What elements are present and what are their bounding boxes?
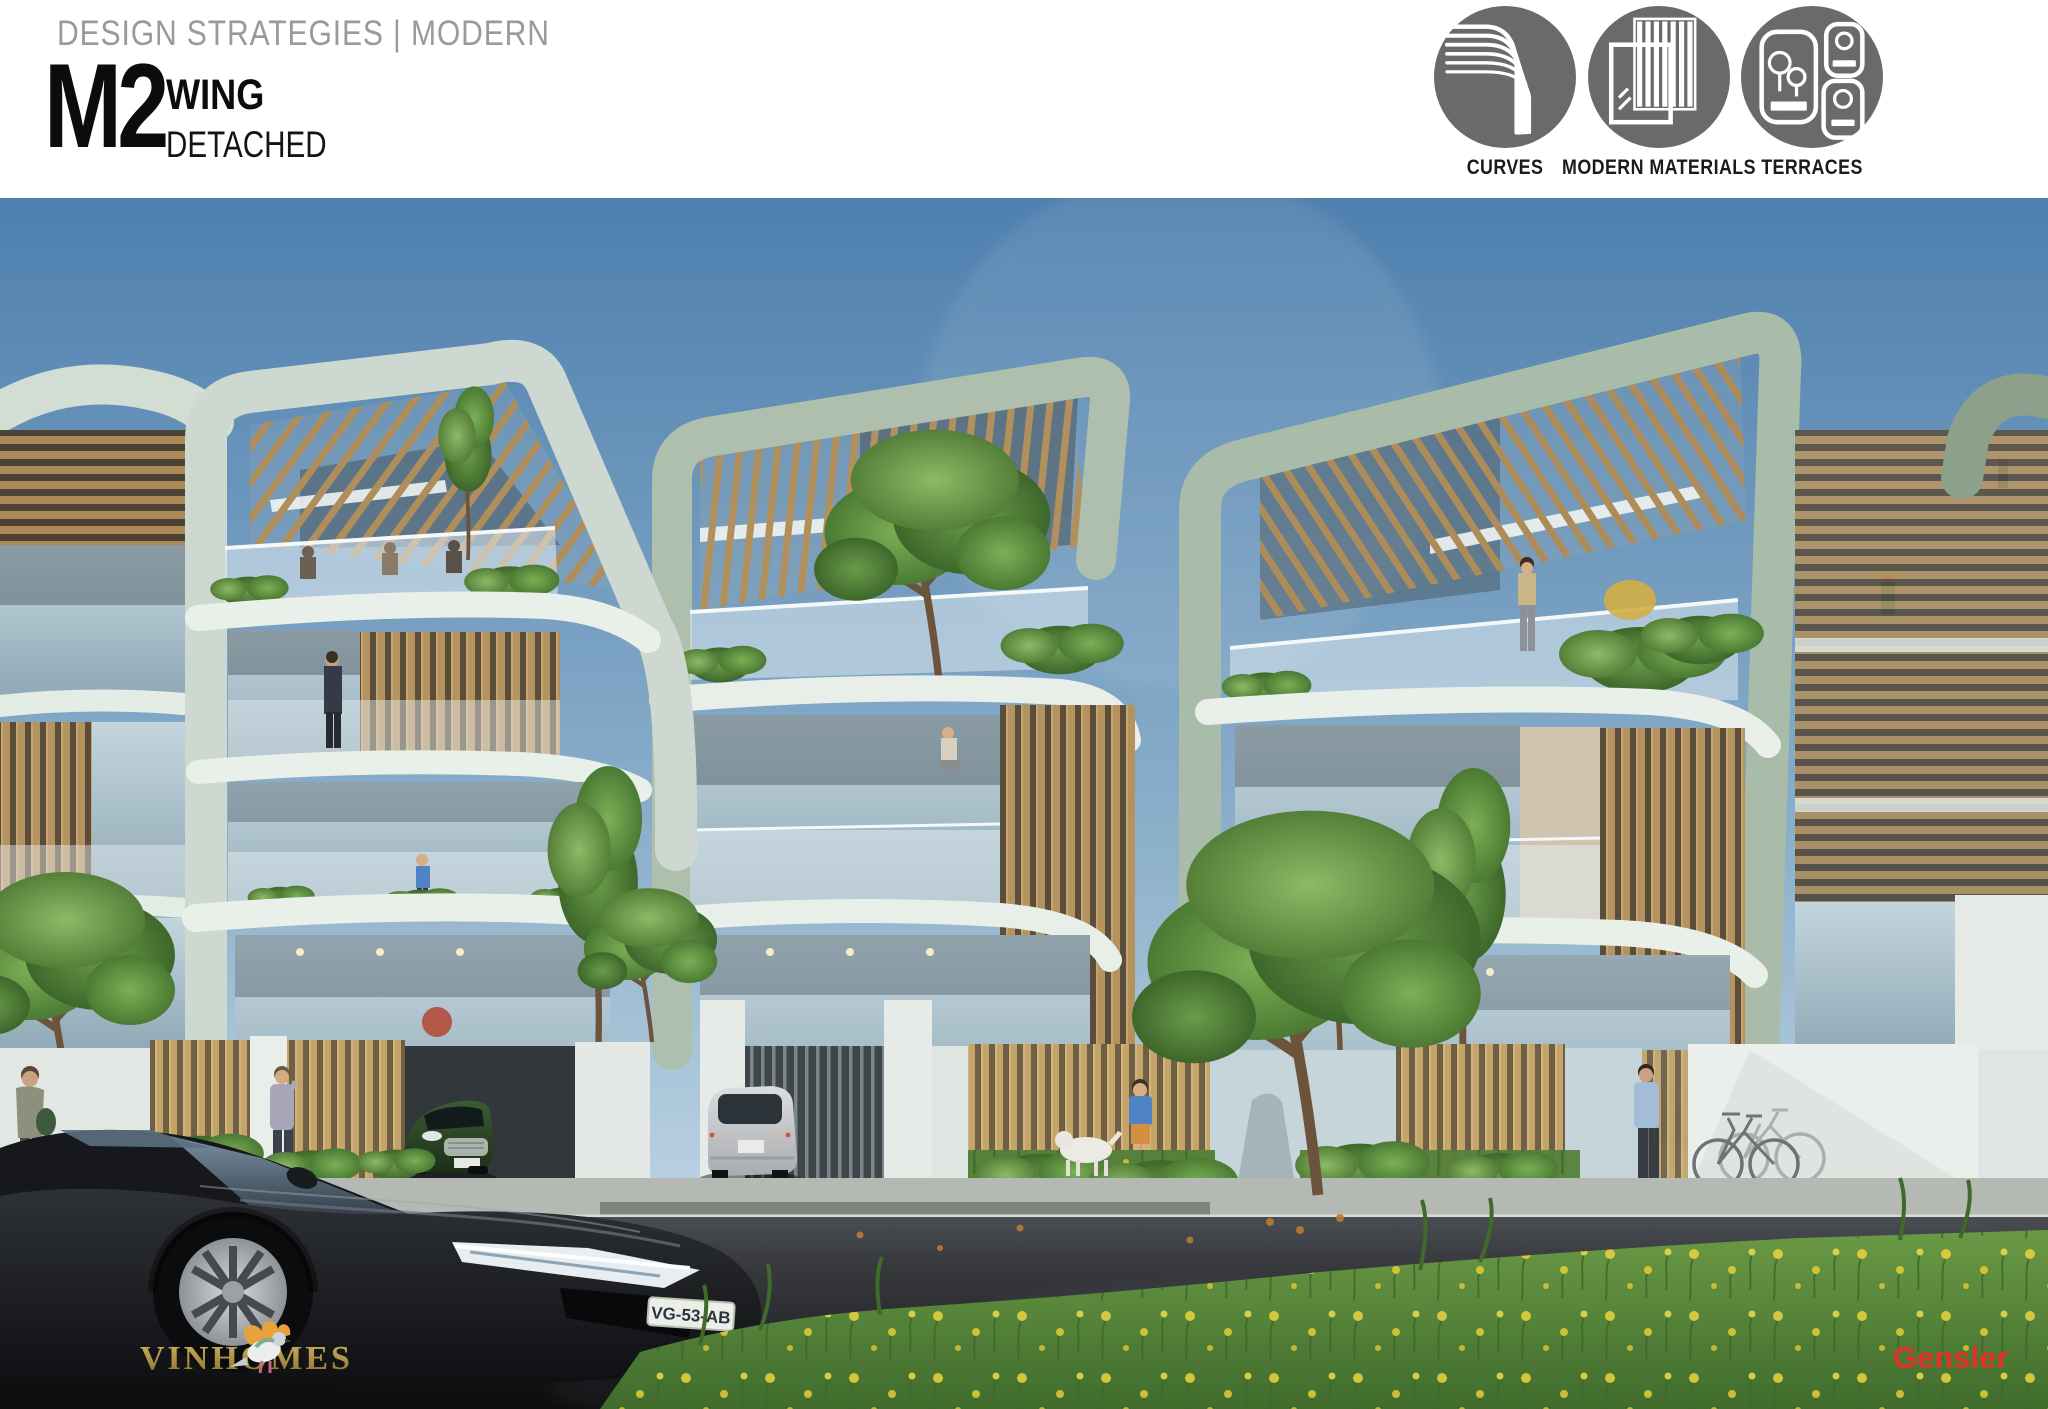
curves-icon [1434, 6, 1576, 148]
car-suv-silver [698, 1086, 802, 1189]
strategy-modern-materials: MODERN MATERIALS [1588, 6, 1730, 148]
modern-materials-icon [1588, 6, 1730, 148]
presentation-slide: DESIGN STRATEGIES | MODERN M2 WING DETAC… [0, 0, 2048, 1409]
drain-channel [600, 1202, 1210, 1215]
building-right-partial [1795, 395, 2048, 1057]
page-title-sub: DETACHED [166, 124, 327, 166]
page-title: WING DETACHED [166, 72, 367, 166]
vinhomes-wordmark: VINHOMES [140, 1340, 353, 1377]
gate-post [884, 1000, 932, 1184]
gensler-logo: Gensler [1893, 1340, 2008, 1375]
slide-header: DESIGN STRATEGIES | MODERN M2 WING DETAC… [0, 0, 2048, 198]
strategy-terraces: TERRACES [1741, 6, 1883, 148]
strategy-label: MODERN MATERIALS [1562, 156, 1756, 180]
strategy-label: CURVES [1467, 156, 1544, 180]
strategy-label: TERRACES [1761, 156, 1863, 180]
page-title-main: WING [166, 72, 335, 118]
architectural-rendering: VG-53-AB VINHOMES [0, 198, 2048, 1409]
autumn-bush [1604, 580, 1656, 620]
page-title-code: M2 [44, 52, 165, 160]
interior-artwork [422, 1007, 452, 1037]
license-plate: VG-53-AB [647, 1297, 735, 1331]
strategy-curves: CURVES [1434, 6, 1576, 148]
terraces-icon [1741, 6, 1883, 148]
